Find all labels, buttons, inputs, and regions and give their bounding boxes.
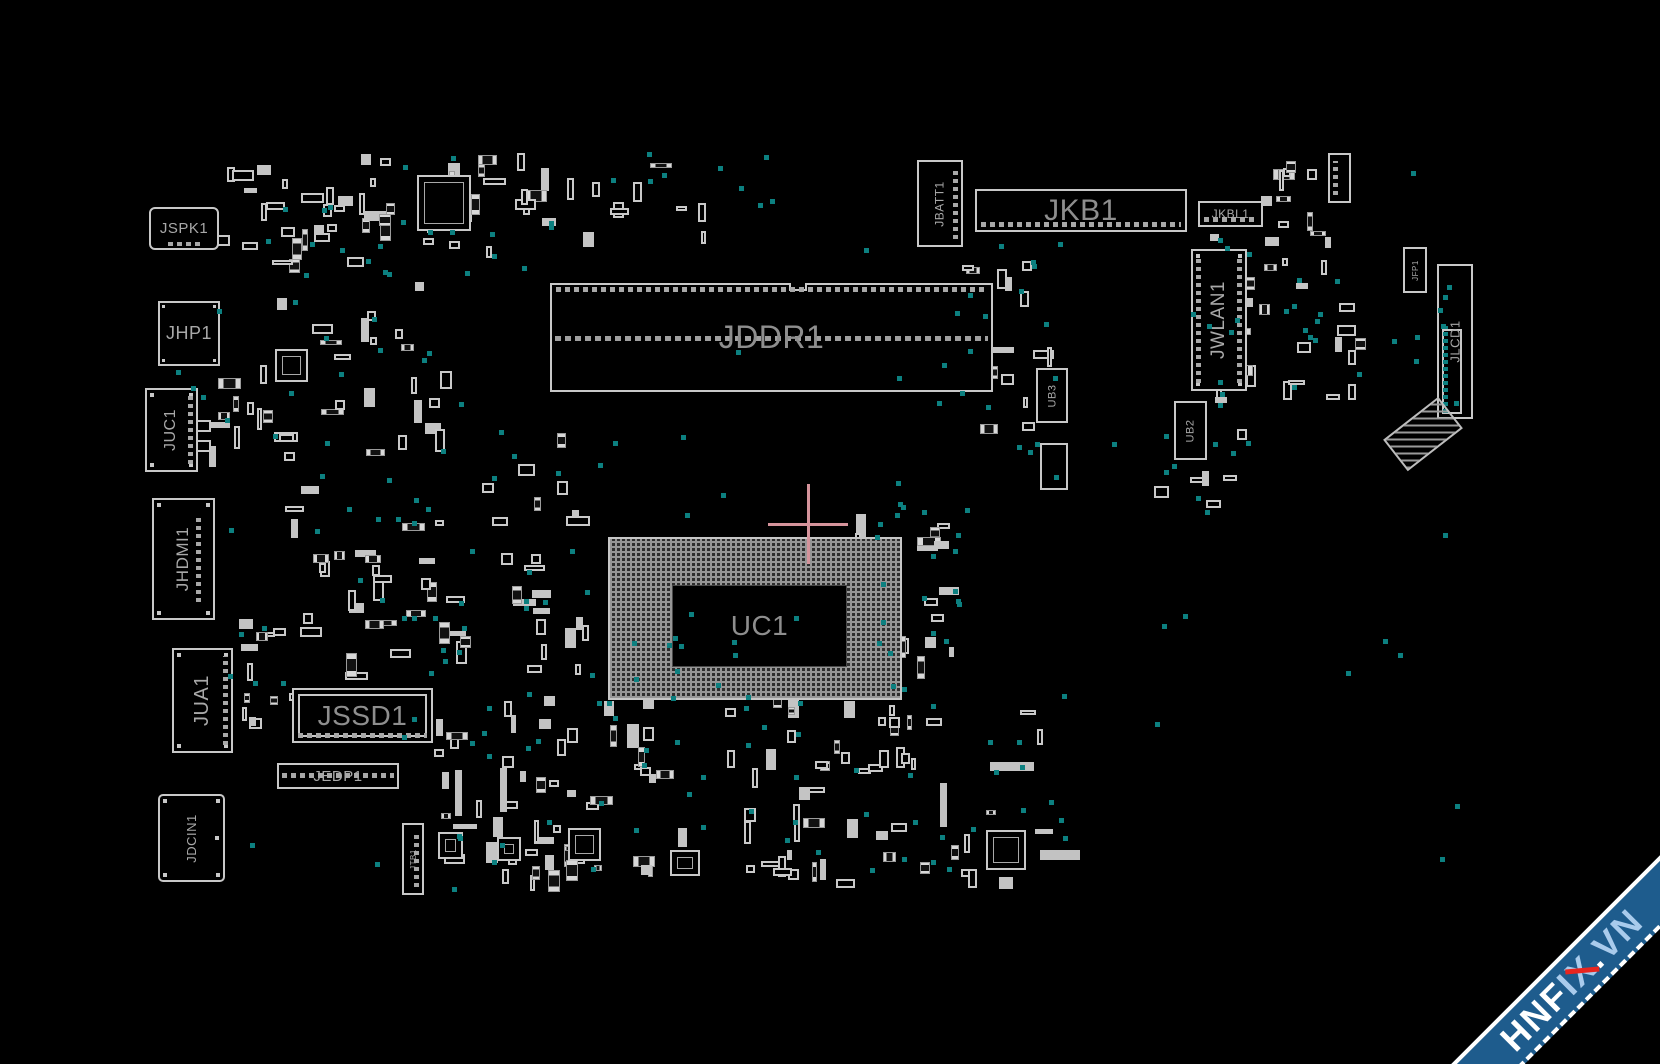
smd-part: [346, 653, 357, 677]
test-point: [217, 309, 222, 314]
test-point: [611, 178, 616, 183]
smd-part: [1237, 429, 1247, 440]
test-point: [403, 165, 408, 170]
smd-part: [301, 193, 324, 203]
test-point: [470, 549, 475, 554]
component-jedp1[interactable]: JEDP1: [277, 763, 399, 789]
test-point: [1213, 442, 1218, 447]
smd-part: [949, 647, 955, 657]
test-point: [396, 517, 401, 522]
test-point: [492, 254, 497, 259]
test-point: [1162, 624, 1167, 629]
corner-dot: [157, 503, 161, 507]
smd-part: [434, 749, 444, 757]
component-label-jwlan1: JWLAN1: [1208, 281, 1230, 359]
component-label-ub2: UB2: [1185, 419, 1197, 442]
smd-part: [986, 810, 996, 815]
test-point: [262, 626, 267, 631]
smd-part: [788, 707, 795, 715]
smd-part: [493, 817, 503, 836]
smd-part: [314, 225, 325, 235]
test-point: [266, 239, 271, 244]
smd-part: [1037, 729, 1043, 745]
component-jhp1[interactable]: JHP1: [158, 301, 220, 366]
test-point: [870, 868, 875, 873]
test-point: [1049, 800, 1054, 805]
smd-part: [549, 780, 559, 786]
test-point: [1032, 264, 1037, 269]
crosshair-vertical: [807, 484, 810, 564]
smd-part: [883, 852, 896, 862]
test-point: [412, 616, 417, 621]
smd-part: [239, 619, 253, 629]
component-jssd1[interactable]: JSSD1: [292, 688, 433, 743]
test-point: [922, 510, 927, 515]
smd-part: [744, 821, 751, 844]
test-point: [922, 596, 927, 601]
pin-row: [556, 287, 987, 292]
test-point: [667, 643, 672, 648]
test-point: [599, 801, 604, 806]
smd-part: [534, 497, 541, 510]
test-point: [671, 696, 676, 701]
test-point: [613, 441, 618, 446]
smd-part: [1047, 347, 1052, 367]
component-jkbl1[interactable]: JKBL1: [1198, 201, 1263, 227]
test-point: [325, 441, 330, 446]
corner-tick: [213, 305, 216, 308]
test-point: [965, 508, 970, 513]
smd-part: [701, 231, 706, 245]
component-bar-4: [1040, 850, 1080, 860]
test-point: [679, 644, 684, 649]
test-point: [940, 835, 945, 840]
test-point: [662, 173, 667, 178]
smd-part: [335, 400, 345, 410]
smd-part: [533, 608, 550, 614]
smd-part: [1035, 829, 1053, 835]
smd-part: [1020, 710, 1037, 715]
corner-dot: [150, 393, 154, 397]
corner-dot: [206, 503, 210, 507]
component-label-jkb1: JKB1: [1044, 194, 1118, 228]
test-point: [376, 517, 381, 522]
tab: [196, 420, 211, 432]
test-point: [613, 716, 618, 721]
smd-part: [517, 153, 525, 171]
smd-part: [1348, 350, 1357, 365]
smd-part: [263, 410, 274, 423]
smd-part: [1022, 422, 1035, 432]
component-bar-3: [940, 783, 947, 827]
component-label-juc1: JUC1: [162, 409, 180, 451]
smd-part: [787, 730, 796, 742]
test-point: [721, 493, 726, 498]
smd-part: [281, 227, 295, 236]
test-point: [685, 513, 690, 518]
component-jddr1[interactable]: JDDR1: [550, 283, 993, 392]
test-point: [931, 704, 936, 709]
component-label-jddr1: JDDR1: [719, 319, 825, 356]
test-point: [1019, 289, 1024, 294]
test-point: [897, 376, 902, 381]
smd-part: [531, 554, 542, 565]
test-point: [426, 507, 431, 512]
smd-part: [532, 590, 551, 598]
smd-part: [536, 619, 546, 635]
smd-part: [917, 656, 925, 680]
test-point: [953, 549, 958, 554]
test-point: [402, 735, 407, 740]
test-point: [591, 867, 596, 872]
component-label-jspk1: JSPK1: [160, 220, 208, 237]
test-point: [556, 471, 561, 476]
test-point: [968, 293, 973, 298]
smd-part: [934, 541, 949, 549]
smd-part: [232, 170, 254, 182]
test-point: [675, 669, 680, 674]
smd-part: [576, 617, 584, 630]
smd-part: [1348, 384, 1356, 399]
test-point: [864, 248, 869, 253]
test-point: [1235, 318, 1240, 323]
test-point: [465, 271, 470, 276]
smd-part: [876, 831, 887, 840]
test-point: [512, 454, 517, 459]
smd-part: [365, 555, 381, 564]
test-point: [527, 570, 532, 575]
test-point: [1440, 857, 1445, 862]
test-point: [229, 528, 234, 533]
smd-part: [1286, 161, 1296, 173]
test-point: [375, 862, 380, 867]
component-label-jua1: JUA1: [191, 675, 214, 726]
component-jspk1[interactable]: JSPK1: [149, 207, 219, 250]
test-point: [570, 549, 575, 554]
test-point: [908, 773, 913, 778]
smd-part: [247, 663, 253, 681]
smd-part: [511, 715, 516, 733]
smd-part: [373, 575, 392, 582]
component-label-jssd1: JSSD1: [318, 700, 408, 732]
test-point: [452, 887, 457, 892]
test-point: [877, 641, 882, 646]
smd-part: [575, 664, 580, 675]
component-ub3[interactable]: UB3: [1036, 368, 1068, 423]
component-uc1[interactable]: UC1: [608, 537, 902, 700]
smd-part: [1259, 304, 1270, 314]
test-point: [401, 220, 406, 225]
smd-part: [1282, 258, 1289, 266]
test-point: [429, 671, 434, 676]
component-jfp1[interactable]: JFP1: [1403, 247, 1427, 293]
smd-part: [401, 344, 414, 351]
smd-part: [527, 665, 542, 673]
test-point: [1028, 450, 1033, 455]
smd-part: [348, 590, 356, 612]
test-point: [733, 653, 738, 658]
smd-part: [1023, 397, 1028, 408]
test-point: [1059, 818, 1064, 823]
qfn-inner-pad: [993, 837, 1019, 863]
component-jua1[interactable]: JUA1: [172, 648, 233, 753]
smd-part: [553, 825, 560, 833]
test-point: [1229, 330, 1234, 335]
test-point: [689, 612, 694, 617]
test-point: [798, 701, 803, 706]
test-point: [701, 775, 706, 780]
smd-part: [270, 696, 278, 706]
component-juc1[interactable]: JUC1: [145, 388, 198, 472]
test-point: [878, 522, 883, 527]
smd-part: [1326, 394, 1340, 400]
smd-part: [249, 717, 256, 726]
watermark-banner: H N F I X . V N: [1398, 806, 1660, 1064]
component-qfn-d: [986, 830, 1026, 870]
smd-part: [1223, 475, 1237, 481]
test-point: [648, 179, 653, 184]
smd-part: [964, 834, 970, 853]
smd-part: [512, 586, 521, 603]
test-point: [328, 205, 333, 210]
test-point: [1021, 808, 1026, 813]
test-point: [524, 599, 529, 604]
smd-part: [567, 728, 578, 743]
test-point: [1398, 653, 1403, 658]
component-jlcd1[interactable]: JLCD1: [1437, 264, 1473, 419]
smd-part: [656, 770, 674, 779]
smd-part: [476, 800, 482, 818]
test-point: [387, 478, 392, 483]
smd-part: [414, 400, 421, 423]
test-point: [1438, 308, 1443, 313]
smd-part: [442, 772, 449, 789]
test-point: [746, 695, 751, 700]
test-point: [1303, 328, 1308, 333]
smd-part: [291, 519, 297, 538]
test-point: [895, 513, 900, 518]
smd-part: [435, 520, 444, 525]
test-point: [634, 677, 639, 682]
test-point: [1297, 278, 1302, 283]
test-point: [1220, 392, 1225, 397]
component-jbatt1[interactable]: JBATT1: [917, 160, 963, 247]
smd-part: [334, 205, 345, 211]
pin-column: [188, 396, 193, 464]
smd-part: [911, 758, 916, 770]
test-point: [378, 348, 383, 353]
smd-part: [1265, 237, 1280, 246]
test-point: [239, 632, 244, 637]
test-point: [881, 620, 886, 625]
board-canvas[interactable]: H N F I X . V N JSPK1JHP1JUC1JHDMI1JUA1J…: [0, 0, 1660, 1064]
test-point: [716, 683, 721, 688]
smd-part: [242, 707, 247, 721]
smd-part: [1276, 196, 1291, 202]
test-point: [891, 684, 896, 689]
test-point: [433, 616, 438, 621]
smd-part: [847, 819, 858, 838]
component-u-b3b: [1040, 443, 1068, 490]
test-point: [718, 166, 723, 171]
smd-part: [534, 820, 540, 844]
component-label-jtb1: JTB1: [409, 849, 418, 870]
smd-part: [1206, 500, 1222, 507]
smd-part: [1264, 264, 1277, 271]
test-point: [1284, 309, 1289, 314]
smd-part: [300, 627, 322, 637]
test-point: [597, 701, 602, 706]
smd-part: [532, 866, 540, 879]
component-jdcin1[interactable]: JDCIN1: [158, 794, 225, 882]
test-point: [283, 207, 288, 212]
smd-part: [285, 506, 304, 512]
smd-part: [244, 693, 250, 703]
smd-part: [361, 154, 371, 165]
smd-part: [386, 203, 395, 215]
smd-part: [502, 756, 513, 768]
test-point: [324, 336, 329, 341]
smd-part: [334, 354, 352, 360]
smd-part: [441, 813, 451, 819]
test-point: [273, 434, 278, 439]
test-point: [1207, 324, 1212, 329]
pin-column: [1196, 257, 1201, 383]
test-point: [796, 732, 801, 737]
test-point: [1443, 295, 1448, 300]
smd-part: [218, 378, 241, 389]
smd-part: [1307, 169, 1317, 179]
test-point: [675, 740, 680, 745]
test-point: [524, 606, 529, 611]
test-point: [347, 507, 352, 512]
test-point: [450, 230, 455, 235]
smd-part: [567, 178, 574, 199]
test-point: [1031, 260, 1036, 265]
component-qfn-f: [497, 837, 521, 861]
smd-part: [272, 260, 293, 266]
test-point: [492, 476, 497, 481]
smd-part: [1202, 471, 1209, 485]
test-point: [339, 372, 344, 377]
tab: [196, 440, 211, 452]
smd-part: [277, 298, 287, 309]
smd-part: [746, 865, 755, 873]
component-label-jhdmi1: JHDMI1: [174, 527, 194, 591]
smd-part: [492, 517, 509, 526]
test-point: [901, 505, 906, 510]
component-bar-2: [500, 768, 507, 812]
smd-part: [347, 257, 363, 266]
qfn-inner-pad: [445, 839, 456, 852]
test-point: [785, 838, 790, 843]
smd-part: [727, 750, 735, 769]
test-point: [944, 639, 949, 644]
test-point: [854, 768, 859, 773]
smd-part: [361, 318, 369, 341]
corner-tick: [162, 359, 165, 362]
test-point: [304, 273, 309, 278]
corner-dot: [216, 799, 220, 803]
component-label-jkbl1: JKBL1: [1212, 207, 1250, 221]
test-point: [289, 391, 294, 396]
test-point: [1218, 403, 1223, 408]
test-point: [931, 860, 936, 865]
smd-part: [302, 229, 308, 251]
component-label-ub3: UB3: [1046, 384, 1058, 407]
smd-part: [460, 636, 471, 648]
test-point: [1044, 322, 1049, 327]
test-point: [968, 349, 973, 354]
smd-part: [676, 206, 687, 211]
test-point: [794, 616, 799, 621]
test-point: [315, 529, 320, 534]
test-point: [543, 600, 548, 605]
smd-part: [841, 752, 849, 764]
test-point: [1246, 441, 1251, 446]
test-point: [459, 402, 464, 407]
test-point: [762, 725, 767, 730]
smd-part: [925, 637, 936, 647]
smd-part: [815, 761, 829, 769]
pin-column: [1333, 161, 1338, 195]
test-point: [1315, 319, 1320, 324]
smd-part: [327, 224, 337, 232]
test-point: [225, 418, 230, 423]
smd-part: [610, 208, 629, 215]
test-point: [378, 244, 383, 249]
test-point: [1218, 238, 1223, 243]
smd-part: [326, 187, 334, 205]
component-qfn-c: [568, 828, 601, 861]
test-point: [490, 232, 495, 237]
test-point: [816, 850, 821, 855]
test-point: [1172, 464, 1177, 469]
corner-tick: [162, 305, 165, 308]
test-point: [1205, 510, 1210, 515]
test-point: [1454, 401, 1459, 406]
smd-part: [633, 182, 641, 202]
smd-part: [889, 717, 900, 729]
smd-part: [901, 753, 910, 764]
test-point: [746, 743, 751, 748]
smd-part: [365, 620, 384, 629]
test-point: [427, 351, 432, 356]
test-point: [1183, 614, 1188, 619]
test-point: [881, 582, 886, 587]
smd-part: [836, 879, 855, 888]
qfn-inner-pad: [424, 182, 464, 224]
smd-part: [1339, 303, 1355, 312]
test-point: [642, 763, 647, 768]
corner-dot: [206, 611, 210, 615]
smd-part: [557, 481, 567, 495]
test-point: [1292, 385, 1297, 390]
component-jhdmi1[interactable]: JHDMI1: [152, 498, 215, 620]
smd-part: [334, 551, 345, 561]
test-point: [499, 430, 504, 435]
smd-part: [962, 265, 974, 271]
smd-part: [233, 396, 239, 412]
component-jtb1[interactable]: JTB1: [402, 823, 424, 895]
smd-part: [482, 483, 494, 492]
test-point: [681, 435, 686, 440]
component-ub2[interactable]: UB2: [1174, 401, 1207, 460]
qfn-inner-pad: [575, 835, 594, 854]
component-jkb1[interactable]: JKB1: [975, 189, 1187, 232]
smd-part: [920, 862, 930, 874]
smd-part: [889, 705, 895, 715]
